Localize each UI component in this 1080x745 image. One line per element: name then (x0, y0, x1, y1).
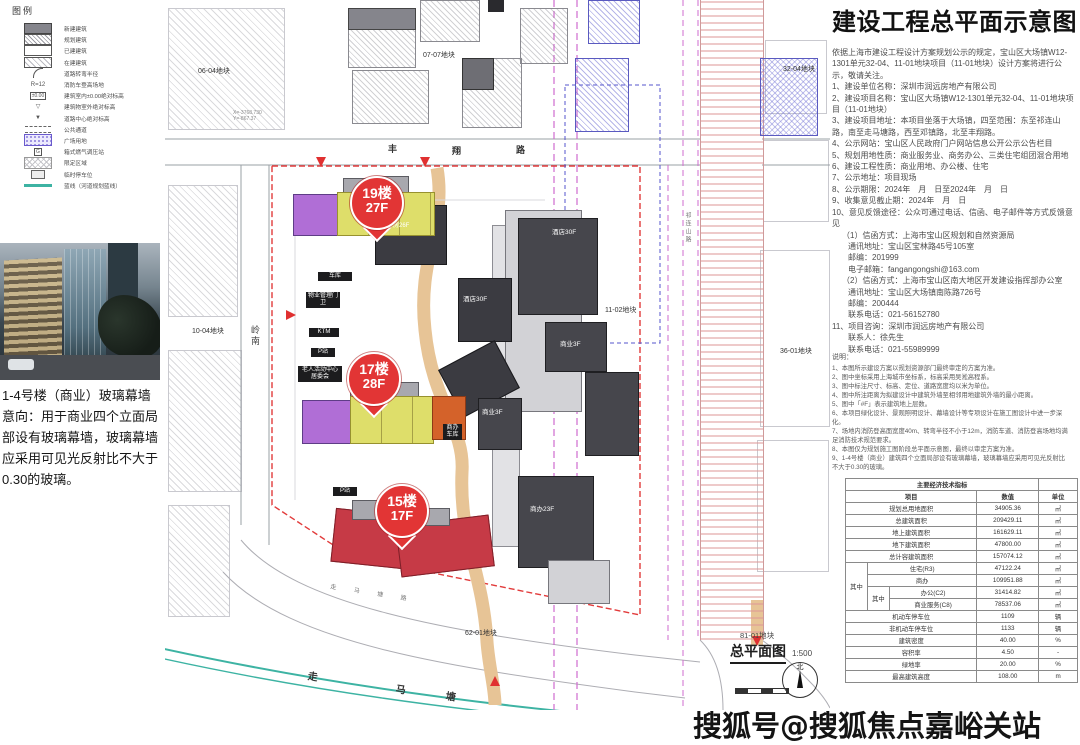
river-char: 走 (307, 667, 319, 683)
east-road-label: 祁连山路 (683, 212, 692, 244)
row-unit: % (1039, 659, 1078, 671)
pin-building-17: 17楼28F (346, 352, 402, 424)
legend-item-label: 消防车登高场地 (64, 80, 104, 89)
mid-tower (585, 372, 639, 456)
drawing-title-block: 81-01地块 总平面图1:500 (730, 630, 830, 664)
pin-building-15: 15楼17F (374, 484, 430, 556)
table-row: 绿地率20.00% (846, 659, 1078, 671)
legend-item-label: 规划建筑 (64, 36, 87, 45)
row-unit: m (1039, 671, 1078, 683)
notice-line: 9、收集意见截止期：2024年 月 日 (832, 195, 1074, 206)
row-label: 商办 (867, 575, 976, 587)
economic-indicators-table: 主要经济技术指标 项目数值单位 规划总用地面积34905.36㎡ 总建筑面积20… (845, 478, 1078, 683)
note-line: 2、图中坐标采用上海城市坐标系，标高采用吴淞高程系。 (832, 373, 1070, 382)
row-unit: ㎡ (1039, 563, 1078, 575)
table-title-spacer (1039, 479, 1078, 491)
railway-band (700, 0, 764, 640)
legend-item: ±0.00建筑室内±0.00绝对标高 (12, 90, 162, 101)
parcel-label-0707: 07-07地块 (423, 50, 455, 60)
note-line: 1、本图所示建设方案以规划资源部门最终审定的方案为准。 (832, 364, 1070, 373)
row-unit: ㎡ (1039, 515, 1078, 527)
row-label: 最高建筑高度 (846, 671, 977, 683)
north-road-char: 丰 (388, 142, 397, 155)
south-podium (548, 560, 610, 604)
symwrap (12, 184, 64, 187)
symwrap: G (12, 148, 64, 156)
trees (98, 295, 160, 357)
row-unit: ㎡ (1039, 539, 1078, 551)
ktm-label: KTM (309, 328, 339, 337)
legend-item-label: 道路转弯半径 (64, 69, 98, 78)
legend-item-label: 建筑室内±0.00绝对标高 (64, 91, 124, 100)
car (8, 359, 34, 370)
row-unit: ㎡ (1039, 551, 1078, 563)
hotel-north-label: 酒店30F (552, 226, 576, 236)
legend-item: R=12消防车登高场地 (12, 79, 162, 90)
parcel-label-1004: 10-04地块 (192, 326, 224, 336)
legend-item-label: 临时停车位 (64, 170, 93, 179)
row-unit: ㎡ (1039, 503, 1078, 515)
table-row: 其中住宅(R3)47122.24㎡ (846, 563, 1078, 575)
row-label: 总建筑面积 (846, 515, 977, 527)
notice-line: 7、公示地址：项目现场 (832, 172, 1074, 183)
notes-section: 说明： 1、本图所示建设方案以规划资源部门最终审定的方案为准。 2、图中坐标采用… (832, 352, 1070, 472)
parcel-label-8101: 81-01地块 (740, 630, 830, 641)
row-value: 47800.00 (977, 539, 1039, 551)
row-label: 住宅(R3) (867, 563, 976, 575)
group-label: 其中 (867, 587, 889, 611)
scale-bar (735, 688, 789, 694)
pin-line1: 17楼 (349, 362, 399, 377)
pin-line2: 28F (349, 377, 399, 391)
note-line: 4、图中所注距离为拟建设计中建筑外墙至相邻用地建筑外墙的最小距离。 (832, 391, 1070, 400)
legend-item: 规划建筑 (12, 34, 162, 45)
col-item: 项目 (846, 491, 977, 503)
group-label: 其中 (846, 563, 868, 611)
row-unit: 辆 (1039, 611, 1078, 623)
row-value: 109951.88 (977, 575, 1039, 587)
table-row: 建筑密度40.00% (846, 635, 1078, 647)
legend-item-label: 新建建筑 (64, 24, 87, 33)
residential-block-purple (293, 194, 339, 236)
legend-item: 已建建筑 (12, 45, 162, 56)
planned-parcel-blue (588, 0, 640, 44)
entrance-arrow (490, 676, 500, 686)
lit-building (4, 257, 62, 358)
legend-item: 限定区域 (12, 157, 162, 168)
info-panel: 建设工程总平面示意图 依据上海市建设工程设计方案规划公示的规定，宝山区大场镇W1… (832, 2, 1078, 355)
site-plan: 车库 物业管理门卫 KTM P站 老人活动中心居委会 P站 商办车库 酒店30F… (165, 0, 830, 710)
note-line: 6、本项目绿化设计、景观照明设计、幕墙设计等专项设计在施工图设计中进一步深化。 (832, 409, 1070, 427)
notice-line: 11、项目咨询：深圳市润远房地产有限公司 (832, 321, 1074, 332)
notice-line: 4、公示网站：宝山区人民政府门户网站信息公开公示公告栏目 (832, 138, 1074, 149)
pin-ball: 15楼17F (375, 484, 429, 538)
legend-item: G箱式燃气调压站 (12, 146, 162, 157)
pin-line2: 27F (352, 201, 402, 215)
legend-item-label: 广场用地 (64, 136, 87, 145)
notes-title: 说明： (832, 352, 1070, 362)
legend-item: 蓝线（河道规划蓝线） (12, 180, 162, 191)
row-value: 157074.12 (977, 551, 1039, 563)
drawing-title: 总平面图 (730, 641, 786, 664)
row-label: 建筑密度 (846, 635, 977, 647)
row-label: 机动车停车位 (846, 611, 977, 623)
rendering-photo (0, 243, 160, 380)
col-value: 数值 (977, 491, 1039, 503)
notice-line: 8、公示期限：2024年 月 日至2024年 月 日 (832, 184, 1074, 195)
office-tower-south (518, 476, 594, 568)
symwrap (12, 68, 64, 78)
planned-parcel-blue (575, 58, 629, 132)
legend-item-label: 建筑物室外绝对标高 (64, 103, 115, 112)
row-value: 1109 (977, 611, 1039, 623)
parcel-label-6201: 62-01地块 (465, 628, 497, 638)
legend-title: 图例 (12, 4, 162, 17)
notice-line: 2、建设项目名称：宝山区大场镇W12-1301单元32-04、11-01地块项目… (832, 93, 1074, 116)
legend-item-label: 公共通道 (64, 125, 87, 134)
legend-item-label: 已建建筑 (64, 47, 87, 56)
note-line: 8、本图仅为规划施工图阶段总平面示意图，最终以审定方案为准。 (832, 445, 1070, 454)
gas-station-symbol: G (34, 148, 42, 156)
page-title: 建设工程总平面示意图 (832, 2, 1078, 37)
parcel-label-1102: 11-02地块 (605, 305, 636, 315)
office-south-label: 商办23F (530, 503, 554, 513)
legend-item: ▽建筑物室外绝对标高 (12, 101, 162, 112)
row-unit: % (1039, 635, 1078, 647)
row-label: 商业服务(C8) (889, 599, 977, 611)
notice-line: 依据上海市建设工程设计方案规划公示的规定，宝山区大场镇W12-1301单元32-… (832, 47, 1074, 81)
note-line: 5、图中「#F」表示建筑地上层数。 (832, 400, 1070, 409)
symwrap: ▽ (12, 103, 64, 110)
row-unit: 辆 (1039, 623, 1078, 635)
table-row: 地上建筑面积161629.11㎡ (846, 527, 1078, 539)
row-label: 非机动车停车位 (846, 623, 977, 635)
row-value: 40.00 (977, 635, 1039, 647)
legend-item: ▼道路中心绝对标高 (12, 113, 162, 124)
legend-item: 公共通道 (12, 124, 162, 135)
symwrap (12, 170, 64, 179)
temp-parking-symbol (31, 170, 45, 179)
entrance-arrow (286, 310, 296, 320)
table-row: 其中办公(C2)31414.82㎡ (846, 587, 1078, 599)
existing-building-roof (348, 8, 416, 30)
parcel-label-3601: 36-01地块 (780, 346, 812, 356)
road-center-elevation-symbol: ▼ (35, 115, 41, 121)
pin-line1: 15楼 (377, 494, 427, 509)
compass-needle (797, 670, 803, 688)
symwrap: ▼ (12, 115, 64, 121)
row-value: 161629.11 (977, 527, 1039, 539)
table-title: 主要经济技术指标 (846, 479, 1039, 491)
notice-line: 3、建设项目地址：本项目坐落于大场镇，四至范围：东至祁连山路，南至走马塘路，西至… (832, 115, 1074, 138)
row-unit: ㎡ (1039, 575, 1078, 587)
public-passage-symbol (25, 126, 51, 133)
table-row: 机动车停车位1109辆 (846, 611, 1078, 623)
small-dark-block (488, 0, 504, 12)
legend-item-label: 箱式燃气调压站 (64, 147, 104, 156)
pin-line2: 17F (377, 509, 427, 523)
hotel-west-label: 酒店30F (463, 293, 487, 303)
symwrap: R=12 (12, 82, 64, 88)
river-char: 马 (395, 680, 407, 696)
row-label: 办公(C2) (889, 587, 977, 599)
symwrap (12, 157, 64, 169)
office-garage-label: 商办车库 (443, 424, 462, 440)
residential-block-purple (302, 400, 352, 444)
table-row: 规划总用地面积34905.36㎡ (846, 503, 1078, 515)
west-road-label: 岭南 (249, 325, 262, 347)
existing-building (520, 8, 568, 64)
notice-text: 依据上海市建设工程设计方案规划公示的规定，宝山区大场镇W12-1301单元32-… (832, 47, 1074, 355)
table-row: 总建筑面积209429.11㎡ (846, 515, 1078, 527)
commercial-west-label: 商业3F (482, 406, 503, 416)
row-value: 1133 (977, 623, 1039, 635)
notice-line: 1、建设单位名称：深圳市润远房地产有限公司 (832, 81, 1074, 92)
row-value: 108.00 (977, 671, 1039, 683)
notice-line: 6、建设工程性质：商业用地、办公楼、住宅 (832, 161, 1074, 172)
blue-line-symbol (24, 184, 52, 187)
restricted-area-symbol (24, 157, 52, 169)
row-value: 20.00 (977, 659, 1039, 671)
symwrap (12, 134, 64, 146)
row-label: 容积率 (846, 647, 977, 659)
drawing-scale: 1:500 (792, 649, 812, 658)
parcel-label-0604: 06-04地块 (198, 66, 230, 76)
legend-item: 道路转弯半径 (12, 68, 162, 79)
row-label: 规划总用地面积 (846, 503, 977, 515)
symwrap: ±0.00 (12, 92, 64, 100)
note-line: 9、1-4号楼（商业）建筑四个立面局部设有玻璃幕墙，玻璃幕墙应采用可见光反射比不… (832, 454, 1070, 472)
legend-item: 新建建筑 (12, 23, 162, 34)
notice-line: 联系人：徐先生 (832, 332, 1074, 343)
notice-line: 通讯地址：宝山区大场镇南陈路726号 (832, 287, 1074, 298)
legend-item-label: 限定区域 (64, 159, 87, 168)
commercial-east-label: 商业3F (560, 338, 581, 348)
legend-item-label: 道路中心绝对标高 (64, 114, 110, 123)
note-line: 7、场地内消防登高面宽度40m、转弯半径不小于12m，消防车道、消防登高场地均满… (832, 427, 1070, 445)
row-label: 地下建筑面积 (846, 539, 977, 551)
watermark: 搜狐号@搜狐焦点嘉峪关站 (693, 703, 1041, 745)
note-line: 3、图中标注尺寸、标高、定位、道路宽度均以米为单位。 (832, 382, 1070, 391)
table-row: 地下建筑面积47800.00㎡ (846, 539, 1078, 551)
row-unit: ㎡ (1039, 527, 1078, 539)
row-unit: ㎡ (1039, 599, 1078, 611)
table-row: 最高建筑高度108.00m (846, 671, 1078, 683)
row-value: 31414.82 (977, 587, 1039, 599)
coordinate-annotation: X=-3768.730 Y=-867.37 (233, 110, 262, 122)
notice-line: 邮编：201999 (832, 252, 1074, 263)
p-station-label: P站 (333, 487, 357, 496)
notice-line: 通讯地址：宝山区宝林路45号105室 (832, 241, 1074, 252)
table-row: 商办109951.88㎡ (846, 575, 1078, 587)
senior-center-label: 老人活动中心居委会 (298, 366, 342, 382)
table-row: 容积率4.50- (846, 647, 1078, 659)
symwrap (12, 57, 64, 68)
existing-building-part (462, 58, 494, 90)
north-arrow: 北 (782, 662, 818, 698)
existing-building-symbol (24, 45, 52, 56)
row-value: 47122.24 (977, 563, 1039, 575)
symwrap (12, 45, 64, 56)
row-unit: ㎡ (1039, 587, 1078, 599)
symwrap (12, 23, 64, 34)
pin-ball: 19楼27F (350, 176, 404, 230)
legend-item-label: 蓝线（河道规划蓝线） (64, 181, 121, 190)
glass-tower (64, 249, 106, 361)
river-char: 塘 (445, 687, 457, 703)
north-road-char: 路 (516, 143, 525, 156)
garage-label: 车库 (318, 272, 352, 281)
north-road-char: 翔 (452, 144, 461, 157)
notice-line: 联系电话：021-56152780 (832, 309, 1074, 320)
legend-item: 临时停车位 (12, 168, 162, 179)
legend-item-label: 在建建筑 (64, 58, 87, 67)
pin-line1: 19楼 (352, 186, 402, 201)
hotel-tower-west (458, 278, 512, 342)
symwrap (12, 126, 64, 133)
outdoor-elevation-symbol: ▽ (36, 103, 41, 110)
table-row: 非机动车停车位1133辆 (846, 623, 1078, 635)
pin-building-19: 19楼27F (349, 176, 405, 248)
row-label: 绿地率 (846, 659, 977, 671)
under-construction-symbol (24, 57, 52, 68)
p-station-label: P站 (311, 348, 335, 357)
legend-item: 广场用地 (12, 135, 162, 146)
notice-line: 邮编：200444 (832, 298, 1074, 309)
notice-line: （2）信函方式：上海市宝山区南大地区开发建设指挥部办公室 (832, 275, 1074, 286)
property-management-label: 物业管理门卫 (306, 292, 340, 308)
legend: 图例 新建建筑 规划建筑 已建建筑 在建建筑 道路转弯半径 R=12消防车登高场… (12, 4, 162, 191)
indoor-elevation-symbol: ±0.00 (30, 92, 46, 100)
existing-building (420, 0, 480, 42)
notice-line: 电子邮箱：fangangongshi@163.com (832, 264, 1074, 275)
row-label: 地上建筑面积 (846, 527, 977, 539)
notice-line: （1）信函方式：上海市宝山区规划和自然资源局 (832, 230, 1074, 241)
table-title-row: 主要经济技术指标 (846, 479, 1078, 491)
turn-radius-symbol (33, 68, 43, 78)
notice-line: 5、规划用地性质：商业服务业、商务办公、三类住宅组团混合用地 (832, 150, 1074, 161)
planned-building-symbol (24, 34, 52, 45)
notice-line: 10、意见反馈途径：公众可通过电话、信函、电子邮件等方式反馈意见 (832, 207, 1074, 230)
row-label: 总计容建筑面积 (846, 551, 977, 563)
parcel-label-3204: 32-04地块 (783, 64, 815, 74)
legend-item: 在建建筑 (12, 57, 162, 68)
table-row: 总计容建筑面积157074.12㎡ (846, 551, 1078, 563)
photo-caption: 1-4号楼（商业）玻璃幕墙意向：用于商业四个立面局部设有玻璃幕墙，玻璃幕墙应采用… (2, 385, 162, 490)
col-unit: 单位 (1039, 491, 1078, 503)
page: 图例 新建建筑 规划建筑 已建建筑 在建建筑 道路转弯半径 R=12消防车登高场… (0, 0, 1080, 743)
new-building-symbol (24, 23, 52, 34)
table-header-row: 项目数值单位 (846, 491, 1078, 503)
entrance-arrow (420, 157, 430, 167)
plaza-land-symbol (24, 134, 52, 146)
entrance-arrow (316, 157, 326, 167)
fire-lane-symbol: R=12 (31, 82, 46, 88)
symwrap (12, 34, 64, 45)
row-unit: - (1039, 647, 1078, 659)
row-value: 78537.06 (977, 599, 1039, 611)
pin-ball: 17楼28F (347, 352, 401, 406)
row-value: 4.50 (977, 647, 1039, 659)
existing-building (352, 70, 429, 124)
row-value: 34905.36 (977, 503, 1039, 515)
row-value: 209429.11 (977, 515, 1039, 527)
